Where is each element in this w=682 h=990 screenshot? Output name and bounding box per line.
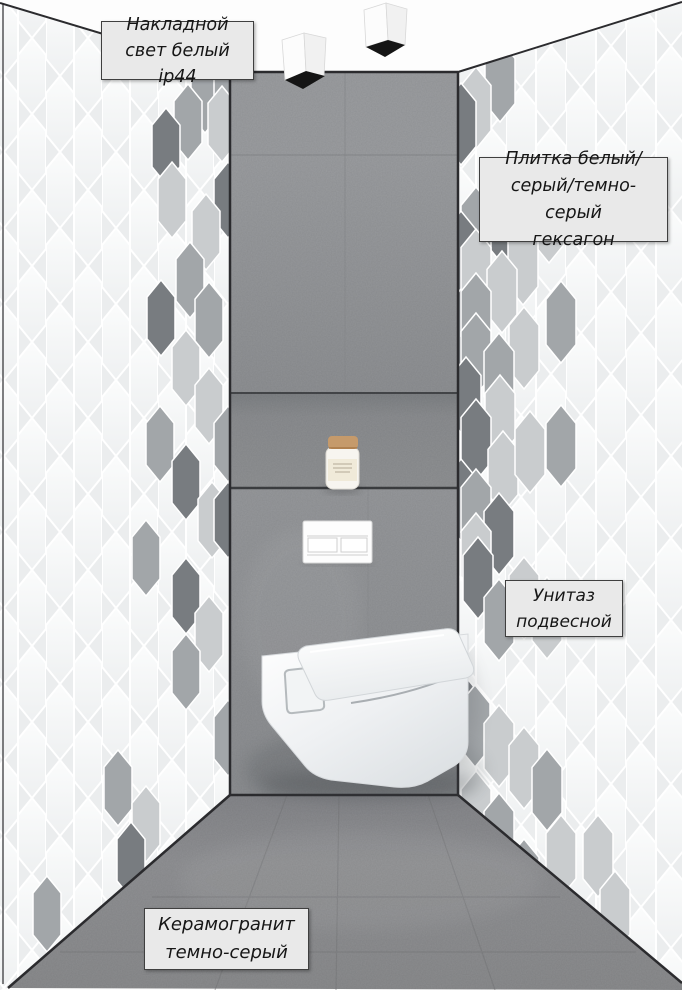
label-wall-tile: Плитка белый/ серый/темно-серый гексагон xyxy=(479,157,668,242)
label-ceiling-light: Накладной свет белый ip44 xyxy=(101,21,254,80)
room-visualization: Накладной свет белый ip44 Плитка белый/ … xyxy=(0,0,682,990)
accent-hex-tile xyxy=(33,876,61,952)
accent-hex-tile xyxy=(515,411,545,493)
accent-hex-tile xyxy=(104,750,132,826)
flush-plate xyxy=(303,521,372,565)
accent-hex-tile xyxy=(172,634,200,710)
accent-hex-tile xyxy=(546,405,576,487)
label-floor-tile: Керамогранит темно-серый xyxy=(144,908,309,970)
candle-jar xyxy=(323,436,361,493)
accent-hex-tile xyxy=(546,281,576,363)
flush-button-large xyxy=(308,538,337,552)
label-toilet: Унитаз подвесной xyxy=(505,580,623,637)
cork-lid xyxy=(328,436,358,449)
accent-hex-tile xyxy=(146,406,174,482)
accent-hex-tile xyxy=(147,280,175,356)
jar-label xyxy=(328,459,357,481)
accent-hex-tile xyxy=(172,444,200,520)
accent-hex-tile xyxy=(132,520,160,596)
accent-hex-tile xyxy=(158,162,186,238)
flush-button-small xyxy=(341,538,367,552)
